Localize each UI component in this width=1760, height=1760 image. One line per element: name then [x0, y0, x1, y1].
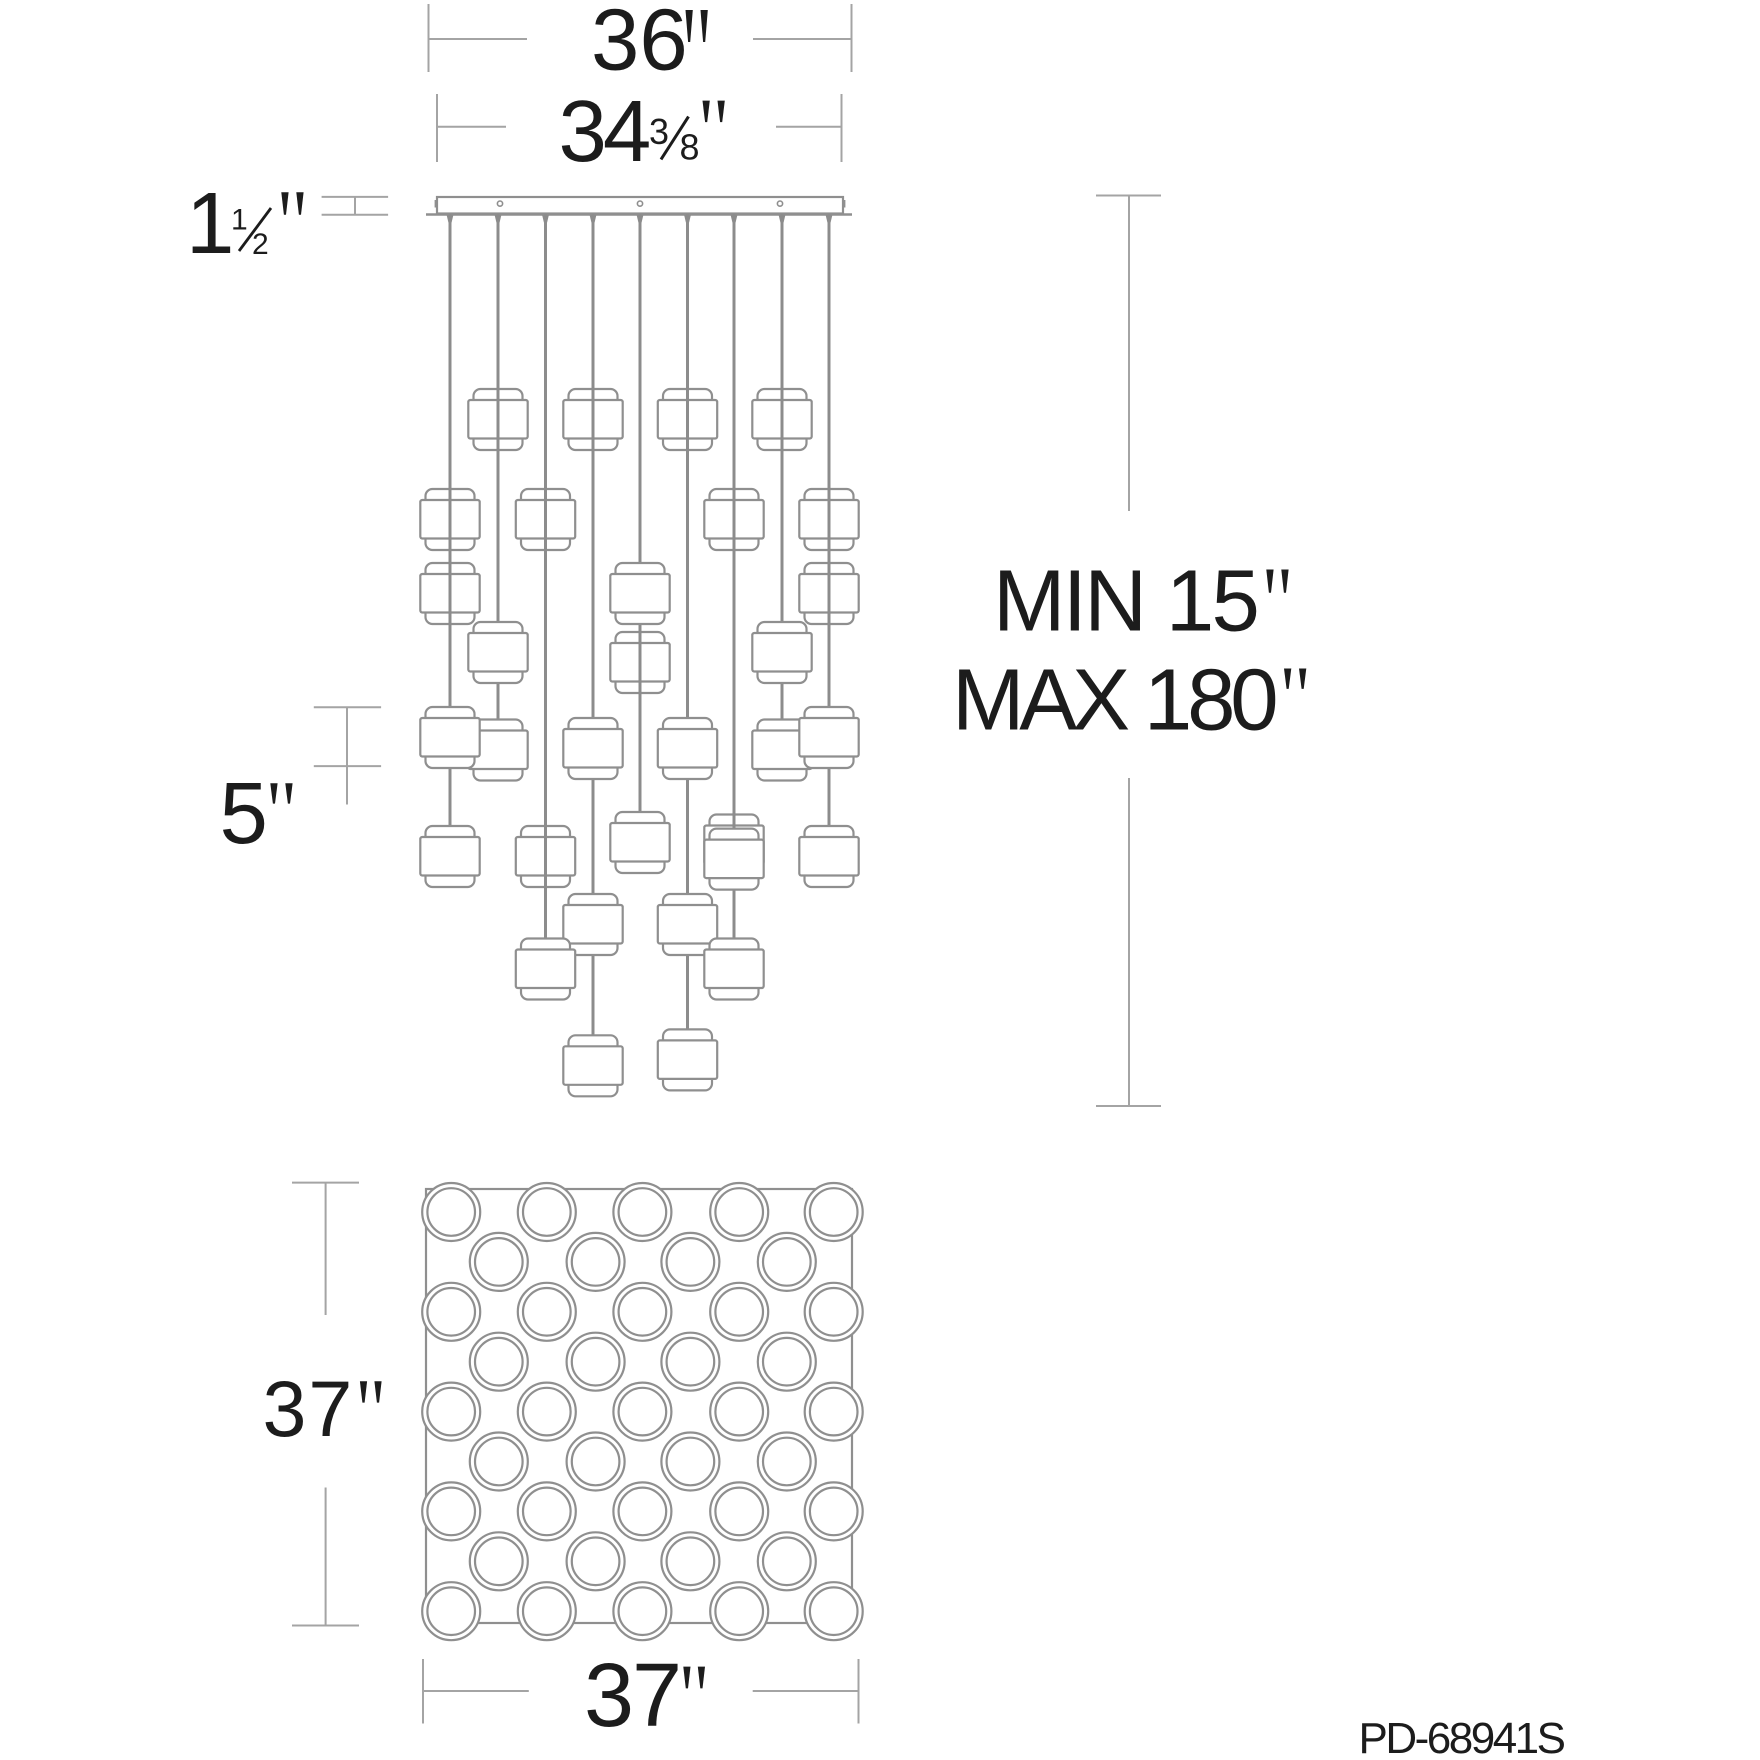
svg-text:MIN 15: MIN 15 [993, 553, 1257, 650]
svg-text:3: 3 [649, 111, 669, 152]
svg-text:37: 37 [584, 1646, 680, 1746]
svg-text:8: 8 [680, 127, 700, 168]
svg-text:PD-68941S: PD-68941S [1359, 1714, 1565, 1760]
svg-text:34: 34 [559, 83, 649, 180]
svg-text:MAX 180: MAX 180 [952, 652, 1275, 749]
svg-text:1: 1 [231, 204, 248, 237]
svg-text:5: 5 [220, 765, 268, 862]
svg-text:36: 36 [591, 0, 688, 89]
svg-text:2: 2 [252, 228, 269, 261]
svg-text:37: 37 [263, 1364, 355, 1453]
svg-text:1: 1 [186, 175, 234, 272]
